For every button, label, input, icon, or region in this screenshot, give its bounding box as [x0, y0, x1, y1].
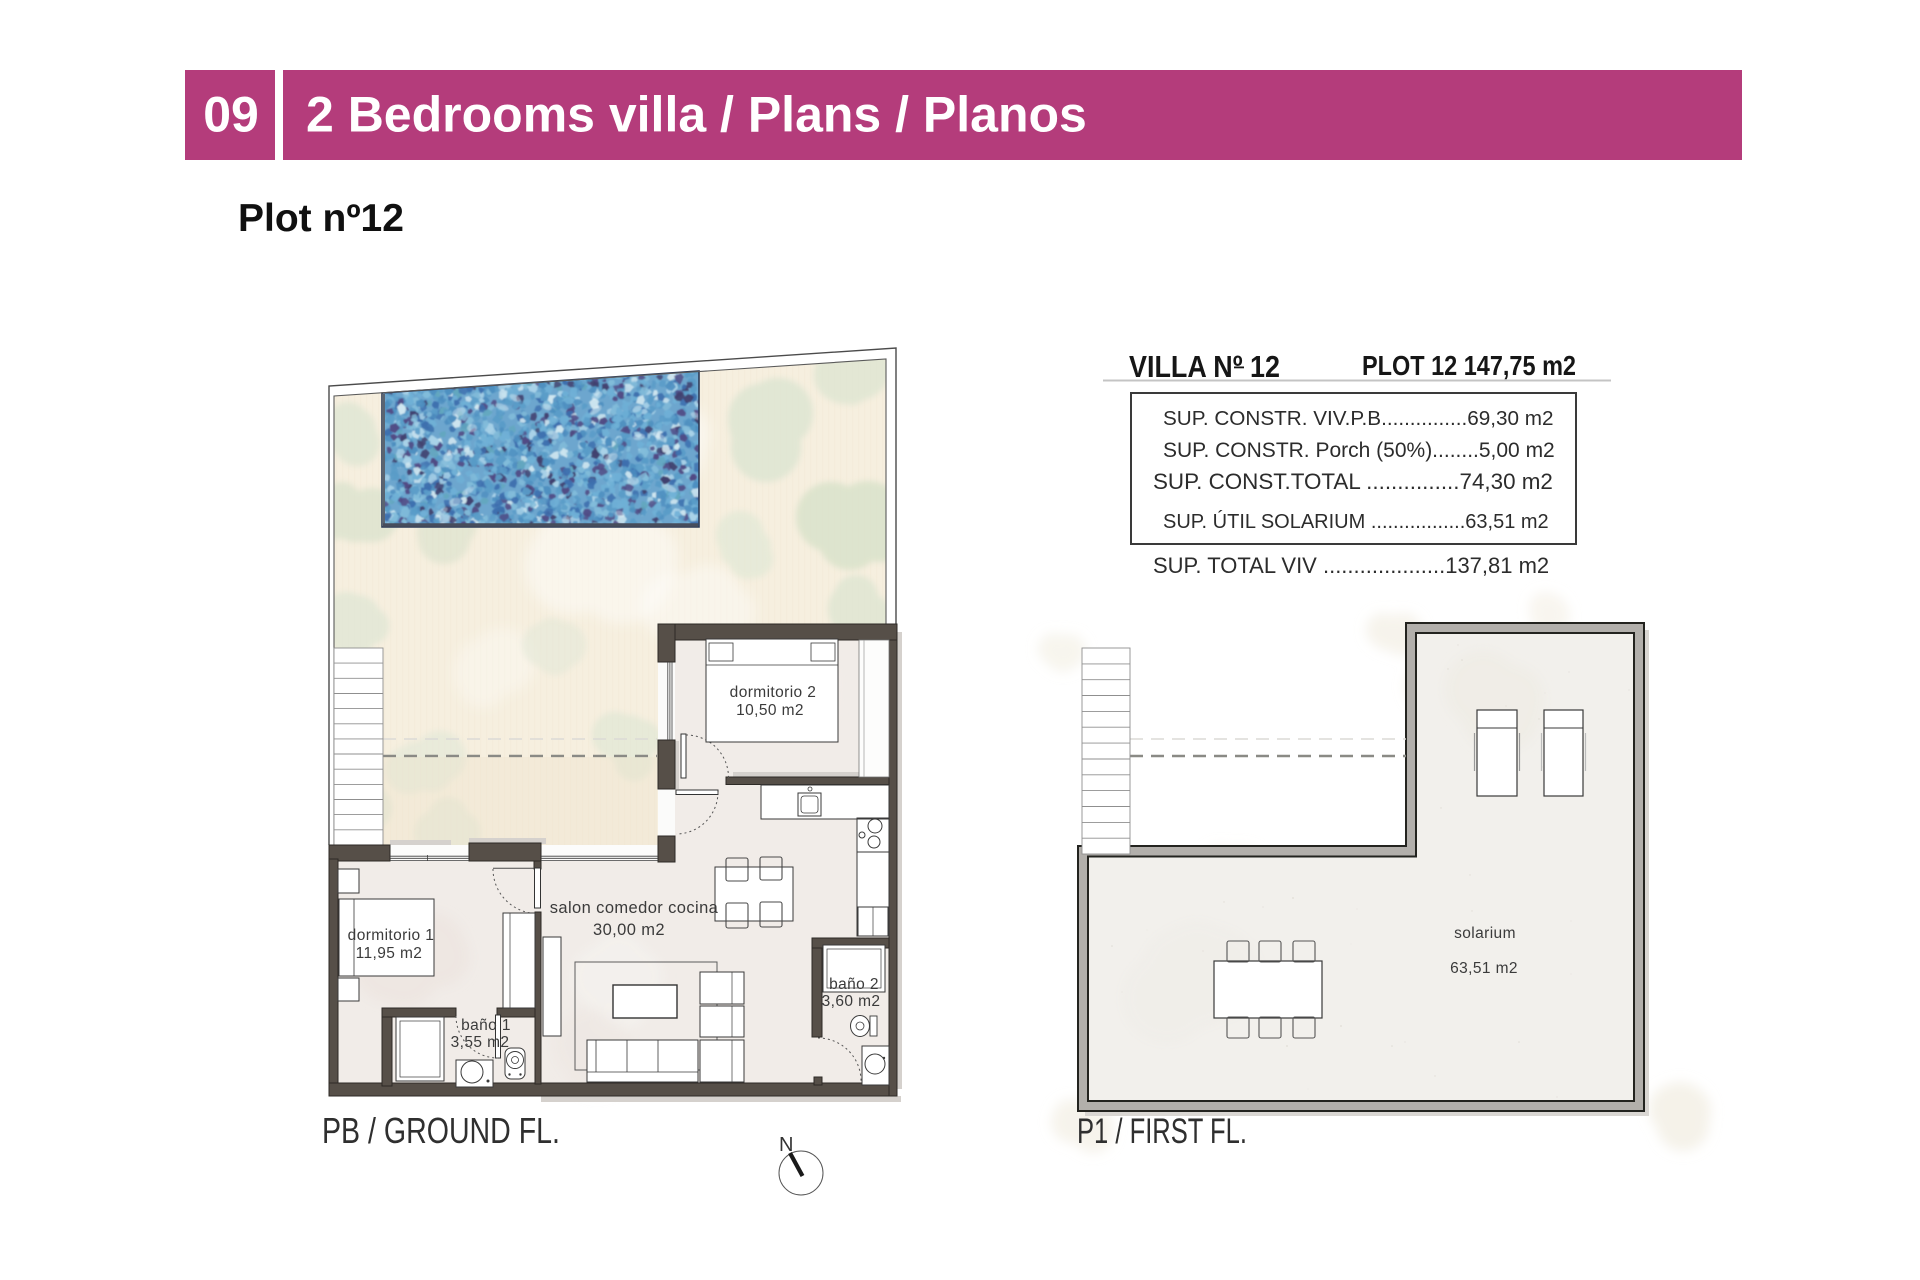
svg-text:SUP. TOTAL VIV ...............: SUP. TOTAL VIV ....................137,8…	[1153, 553, 1549, 578]
svg-text:VILLA Nº 12: VILLA Nº 12	[1129, 349, 1280, 384]
svg-text:PLOT 12 147,75 m2: PLOT 12 147,75 m2	[1362, 350, 1576, 381]
svg-text:dormitorio 1: dormitorio 1	[348, 927, 435, 944]
svg-text:10,50 m2: 10,50 m2	[736, 702, 804, 719]
svg-text:63,51 m2: 63,51 m2	[1450, 960, 1518, 977]
svg-text:salon comedor cocina: salon comedor cocina	[550, 899, 719, 917]
svg-text:09: 09	[203, 87, 259, 143]
svg-text:P1 / FIRST FL.: P1 / FIRST FL.	[1077, 1112, 1247, 1151]
svg-text:dormitorio 2: dormitorio 2	[730, 684, 817, 701]
svg-text:SUP. ÚTIL SOLARIUM ...........: SUP. ÚTIL SOLARIUM .................63,5…	[1163, 510, 1549, 533]
svg-text:SUP. CONSTR. Porch (50%)......: SUP. CONSTR. Porch (50%)........5,00 m2	[1163, 439, 1555, 462]
svg-text:baño 1: baño 1	[461, 1017, 511, 1034]
svg-text:11,95 m2: 11,95 m2	[356, 945, 423, 962]
svg-text:2 Bedrooms villa / Plans / Pla: 2 Bedrooms villa / Plans / Planos	[306, 87, 1087, 143]
svg-text:SUP. CONSTR. VIV.P.B..........: SUP. CONSTR. VIV.P.B...............69,30…	[1163, 407, 1554, 430]
svg-text:solarium: solarium	[1454, 925, 1516, 942]
svg-text:Plot nº12: Plot nº12	[238, 197, 404, 240]
svg-text:PB / GROUND FL.: PB / GROUND FL.	[322, 1110, 560, 1151]
svg-text:30,00 m2: 30,00 m2	[593, 921, 665, 939]
svg-text:N: N	[779, 1134, 793, 1156]
svg-text:baño 2: baño 2	[829, 976, 879, 993]
svg-text:3,55 m2: 3,55 m2	[451, 1034, 510, 1051]
svg-text:SUP. CONST.TOTAL .............: SUP. CONST.TOTAL ...............74,30 m2	[1153, 469, 1553, 494]
svg-text:3,60 m2: 3,60 m2	[822, 993, 881, 1010]
